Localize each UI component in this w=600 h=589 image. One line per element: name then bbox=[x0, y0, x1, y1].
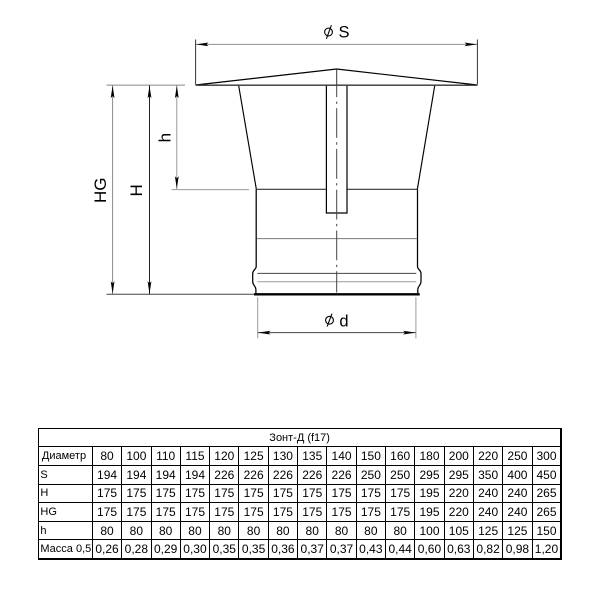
svg-text:d: d bbox=[339, 313, 348, 331]
svg-text:H: H bbox=[127, 184, 146, 196]
svg-text:HG: HG bbox=[91, 178, 110, 204]
svg-text:h: h bbox=[156, 133, 175, 142]
svg-text:S: S bbox=[338, 24, 349, 42]
